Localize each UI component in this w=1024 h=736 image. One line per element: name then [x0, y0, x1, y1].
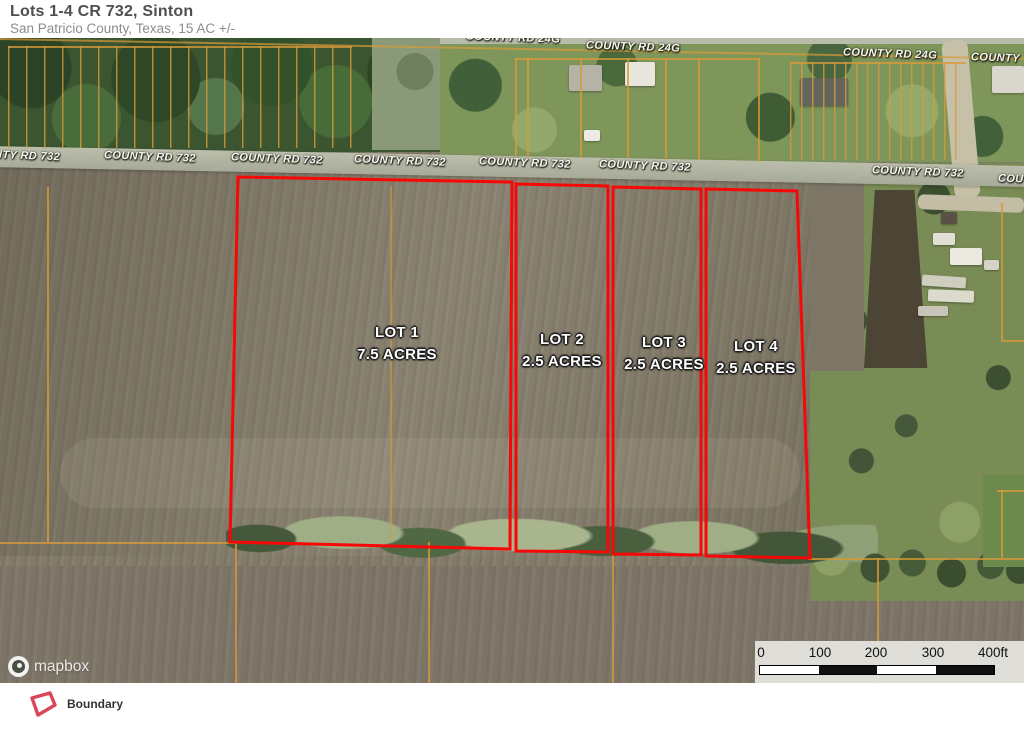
road-label-county-rd-24g: COUNTY	[971, 51, 1020, 65]
legend: Boundary	[0, 683, 1024, 736]
page-subtitle: San Patricio County, Texas, 15 AC +/-	[10, 21, 235, 36]
page-title: Lots 1-4 CR 732, Sinton	[10, 3, 193, 21]
scale-tick: 100	[809, 645, 832, 660]
brown-patch-right	[810, 176, 864, 371]
lot-label: LOT 32.5 ACRES	[624, 332, 704, 376]
mapbox-attribution[interactable]: mapbox	[8, 656, 89, 677]
road-label-county-rd-732: NTY RD 732	[0, 149, 60, 164]
building	[625, 62, 655, 86]
green-corner	[983, 475, 1024, 567]
parcel-line	[428, 542, 430, 683]
scale-segment	[760, 666, 819, 674]
scale-segment	[877, 666, 936, 674]
trailer	[928, 289, 974, 303]
parcel-line	[808, 558, 1024, 560]
parcel-line	[235, 542, 237, 683]
building	[569, 65, 602, 91]
scale-tick: 200	[865, 645, 888, 660]
vegetation-strip	[226, 499, 879, 578]
scale-segment	[819, 666, 878, 674]
parcel-line	[0, 542, 235, 544]
boundary-polygon-icon	[26, 689, 60, 719]
header: Lots 1-4 CR 732, Sinton San Patricio Cou…	[0, 0, 1024, 38]
scale-tick: 0	[757, 645, 765, 660]
building	[584, 130, 600, 141]
parcel-line	[47, 187, 49, 542]
legend-item-boundary	[26, 689, 60, 719]
building	[984, 260, 999, 270]
parcel-line	[1001, 340, 1024, 342]
building	[950, 248, 982, 265]
parcel-line	[758, 58, 760, 162]
parcel-line	[1001, 490, 1003, 558]
parcel-line	[527, 58, 529, 156]
parcel-line	[627, 58, 629, 158]
building	[941, 212, 957, 224]
parcel-line	[515, 58, 517, 156]
scale-tick: 400ft	[978, 645, 1008, 660]
field-pale-band	[60, 438, 800, 508]
scale-segment	[936, 666, 995, 674]
scale-bar-segments	[759, 665, 995, 675]
lot-label: LOT 42.5 ACRES	[716, 336, 796, 380]
road-label-county-rd-732: COU	[998, 173, 1024, 186]
parcel-strips-right	[790, 62, 966, 160]
parcel-line	[515, 58, 760, 60]
trailer	[918, 306, 948, 316]
parcel-line	[1001, 203, 1003, 340]
lot-label: LOT 22.5 ACRES	[522, 329, 602, 373]
legend-label: Boundary	[67, 697, 123, 711]
building	[933, 233, 955, 245]
parcel-line	[665, 58, 667, 160]
scale-tick: 300	[922, 645, 945, 660]
map[interactable]: NTY RD 732COUNTY RD 732COUNTY RD 732COUN…	[0, 38, 1024, 683]
scale-bar: 0100200300400ft	[755, 641, 1024, 683]
lot-label: LOT 17.5 ACRES	[357, 322, 437, 366]
parcel-line	[698, 58, 700, 160]
building	[992, 66, 1024, 93]
parcel-line	[790, 62, 966, 64]
page: Lots 1-4 CR 732, Sinton San Patricio Cou…	[0, 0, 1024, 736]
mapbox-wordmark: mapbox	[34, 658, 89, 676]
mapbox-icon	[8, 656, 29, 677]
parcel-line	[580, 58, 582, 158]
parcel-line	[612, 552, 614, 683]
parcel-strips-left	[8, 46, 352, 148]
parcel-line	[8, 46, 352, 48]
